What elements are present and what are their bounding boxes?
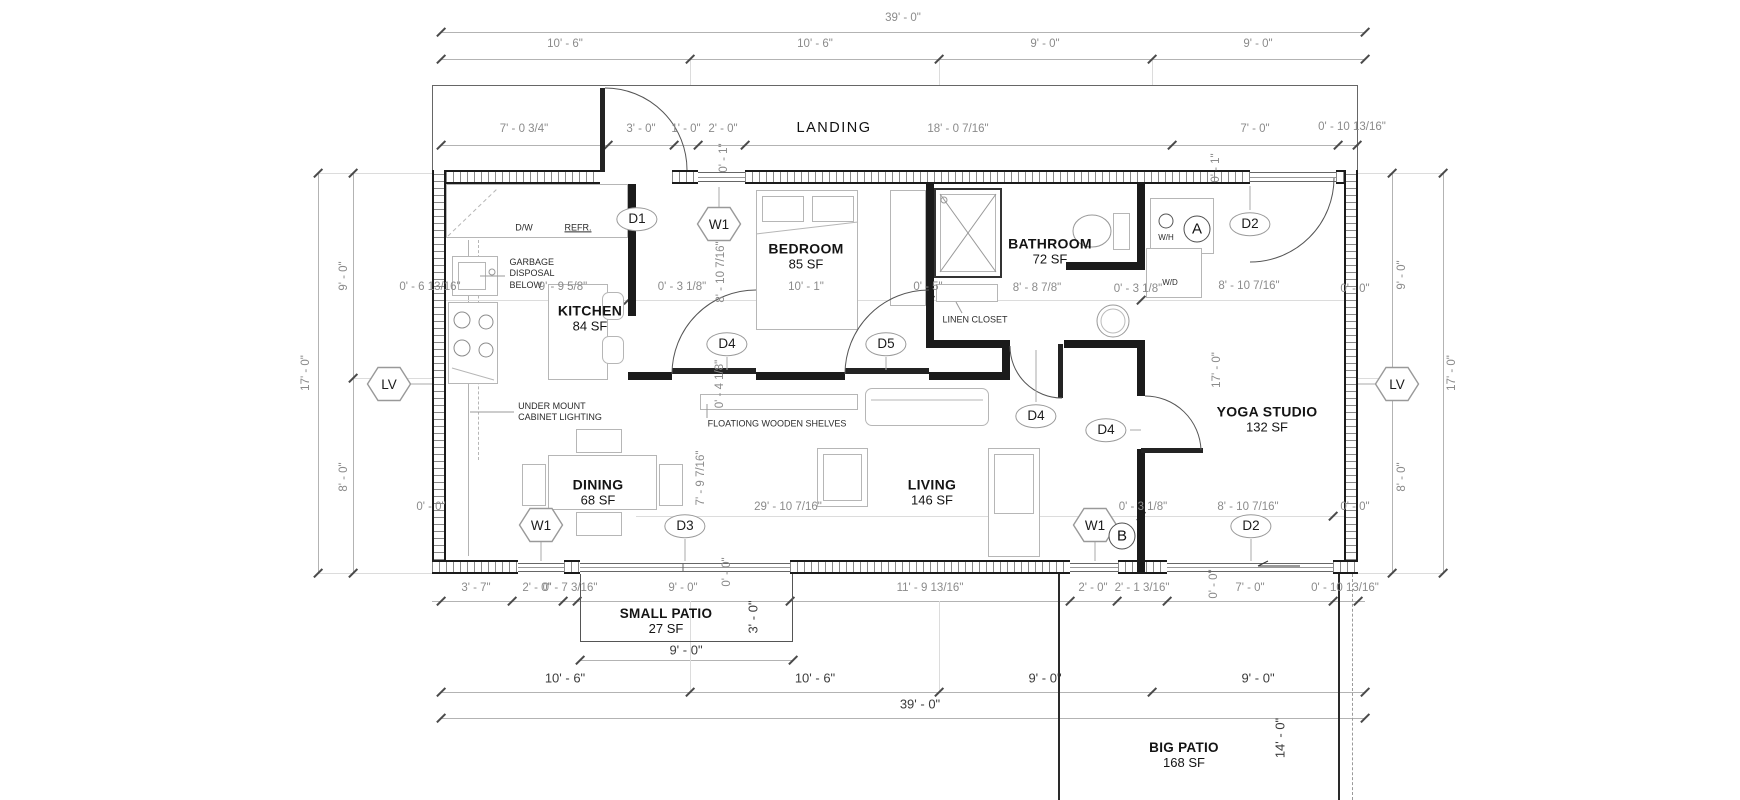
dim-line	[353, 173, 354, 573]
room-name: KITCHEN	[558, 303, 622, 319]
room-label-dining: DINING 68 SF	[573, 477, 624, 508]
dim-0-4-18: 0' - 4 1/8"	[714, 360, 726, 408]
toilet-tank	[1113, 213, 1130, 250]
tag-lv-left: LV	[366, 366, 412, 402]
door-d4-yoga-leaf	[1141, 448, 1203, 453]
tag-window-w1-dining: W1	[518, 507, 564, 543]
dim-small-patio-width: 9' - 0"	[669, 643, 702, 658]
dim-0-1-left: 0' - 1"	[718, 143, 730, 172]
pillow	[812, 196, 854, 222]
linen-closet-shelf	[936, 284, 998, 302]
dim-living-right-1: 0' - 3 1/8"	[1119, 501, 1167, 513]
wall-bedroom-bottom	[756, 372, 845, 380]
island-stool	[602, 336, 624, 364]
dim-left-overall: 17' - 0"	[300, 355, 312, 391]
dim-line	[441, 718, 1365, 719]
dim-bot-5: 11' - 9 13/16"	[897, 582, 964, 594]
dim-mid-4: 10' - 1"	[788, 281, 824, 293]
tag-window-w1-top: W1	[696, 206, 742, 242]
dim-line	[318, 173, 319, 573]
room-area: 27 SF	[620, 621, 713, 636]
dim-small-patio-depth: 3' - 0"	[746, 600, 761, 633]
window-w1-living	[1070, 563, 1118, 572]
tag-text: D2	[1241, 216, 1258, 231]
dim-top-overall: 39' - 0"	[885, 12, 921, 24]
dim-landing-3: 1' - 0"	[671, 123, 700, 135]
dining-chair	[576, 429, 622, 453]
wall-bedroom-bottom	[628, 372, 672, 380]
dim-bot-8: 7' - 0"	[1235, 582, 1264, 594]
room-name: BATHROOM	[1008, 236, 1092, 252]
dim-line	[441, 692, 1365, 693]
dim-bot-9: 0' - 10 13/16"	[1311, 582, 1379, 594]
wall-bottom	[564, 560, 580, 574]
tag-text: A	[1192, 221, 1202, 238]
dim-top-seg2: 10' - 6"	[797, 38, 833, 50]
pillow	[762, 196, 804, 222]
dim-line	[441, 145, 1359, 146]
dim-bot-4: 9' - 0"	[668, 582, 697, 594]
dim-bot-zero-2: 0' - 0"	[1208, 569, 1220, 598]
door-d5-leaf	[845, 368, 929, 374]
wall-yoga-left-upper	[1137, 348, 1145, 396]
room-area: 146 SF	[908, 493, 956, 508]
dim-29-10: 29' - 10 7/16"	[754, 501, 822, 513]
tag-text: D5	[877, 336, 894, 351]
window-w1-bedroom	[698, 172, 745, 182]
dim-0-1-right: 0' - 1"	[1210, 153, 1222, 182]
wall-bottom	[1333, 560, 1358, 574]
dim-bot-1: 3' - 7"	[461, 582, 490, 594]
dim-bseg-4: 9' - 0"	[1241, 671, 1274, 686]
dim-left-zero: 0' - 0"	[416, 501, 445, 513]
washer-dryer-label: W/D	[1162, 278, 1178, 288]
tag-text: D4	[718, 336, 735, 351]
dim-mid-3: 0' - 3 1/8"	[658, 281, 706, 293]
tag-text: D4	[1027, 408, 1044, 423]
landing-label: LANDING	[797, 120, 872, 136]
dim-right-zero: 0' - 0"	[1340, 501, 1369, 513]
dim-line	[441, 59, 1365, 60]
shower-pan	[940, 194, 996, 272]
door-d4-bath-leaf	[1058, 344, 1063, 398]
tag-door-d4-bedroom: D4	[706, 332, 747, 356]
room-area: 85 SF	[768, 257, 843, 272]
room-area: 68 SF	[573, 493, 624, 508]
tag-section-b: B	[1109, 523, 1136, 550]
dishwasher-label: D/W	[515, 222, 533, 233]
dim-living-right-2: 8' - 10 7/16"	[1217, 501, 1278, 513]
dim-mid-8: 8' - 10 7/16"	[1218, 280, 1279, 292]
refrigerator-label: REFR.	[565, 222, 592, 233]
tag-door-d2-top: D2	[1229, 212, 1270, 236]
floor-plan-canvas: 39' - 0" 10' - 6" 10' - 6" 9' - 0" 9' - …	[0, 0, 1740, 800]
wall-bottom	[790, 560, 1070, 574]
dim-line	[1443, 173, 1444, 573]
big-patio-edge	[1338, 574, 1340, 800]
armchair-cushion	[823, 454, 862, 501]
dim-mid-6: 8' - 8 7/8"	[1013, 282, 1061, 294]
tag-text: LV	[366, 366, 412, 402]
wall-top	[672, 170, 698, 184]
wall-bedroom-bath	[926, 184, 934, 348]
dim-mid-9: 0' - 0"	[1340, 283, 1369, 295]
room-label-small-patio: SMALL PATIO 27 SF	[620, 606, 713, 636]
tag-section-a: A	[1184, 216, 1211, 243]
dim-bseg-1: 10' - 6"	[545, 671, 585, 686]
dining-chair	[522, 464, 546, 506]
room-name: DINING	[573, 477, 624, 493]
dim-left-lower: 8' - 0"	[338, 462, 350, 491]
guide-line	[1358, 573, 1443, 574]
tag-door-d4-bath: D4	[1015, 404, 1056, 428]
dim-bot-zero-1: 0' - 0"	[721, 557, 733, 586]
door-d1-leaf	[600, 88, 605, 172]
room-label-bedroom: BEDROOM 85 SF	[768, 241, 843, 272]
dim-line	[441, 32, 1365, 33]
tag-door-d2-bottom: D2	[1230, 514, 1271, 538]
tag-text: D4	[1097, 422, 1114, 437]
dim-mid-7: 0' - 3 1/8"	[1114, 283, 1162, 295]
tag-text: LV	[1374, 366, 1420, 402]
guide-line	[1358, 173, 1443, 174]
dim-landing-6: 7' - 0"	[1240, 123, 1269, 135]
dim-bseg-3: 9' - 0"	[1028, 671, 1061, 686]
dim-top-seg1: 10' - 6"	[547, 38, 583, 50]
tag-text: D1	[628, 211, 645, 226]
room-area: 132 SF	[1217, 420, 1318, 435]
dim-left-upper: 9' - 0"	[338, 261, 350, 290]
dim-bottom-overall: 39' - 0"	[900, 697, 940, 712]
stove	[448, 302, 498, 384]
wall-bottom	[432, 560, 518, 574]
dim-top-seg3: 9' - 0"	[1030, 38, 1059, 50]
dim-bot-3: 0' - 7 3/16"	[543, 582, 598, 594]
dim-landing-4: 2' - 0"	[708, 123, 737, 135]
tag-door-d3: D3	[664, 514, 705, 538]
tag-text: B	[1117, 528, 1127, 545]
guide-line	[318, 173, 432, 174]
wall-kitchen-bedroom	[628, 184, 636, 316]
door-d3-patio-slider	[580, 563, 790, 572]
dim-landing-2: 3' - 0"	[626, 123, 655, 135]
room-label-living: LIVING 146 SF	[908, 477, 956, 508]
door-d2-entry-opening	[1250, 172, 1336, 182]
dim-mid-5: 0' - 5"	[913, 281, 942, 293]
room-area: 72 SF	[1008, 252, 1092, 267]
dim-right-lower: 8' - 0"	[1396, 462, 1408, 491]
big-patio-edge	[1058, 574, 1060, 800]
room-name: YOGA STUDIO	[1217, 404, 1318, 420]
dining-chair	[659, 464, 683, 506]
room-area: 84 SF	[558, 319, 622, 334]
big-patio-dashed-edge	[1352, 574, 1353, 800]
tag-lv-right: LV	[1374, 366, 1420, 402]
room-label-big-patio: BIG PATIO 168 SF	[1149, 740, 1219, 770]
dim-7-9-716: 7' - 9 7/16"	[695, 451, 707, 506]
undermount-lighting-note: UNDER MOUNT CABINET LIGHTING	[518, 401, 602, 424]
floating-shelves-label: FLOATIONG WOODEN SHELVES	[708, 418, 847, 429]
window-w1-dining	[518, 563, 564, 572]
tag-door-d4-yoga: D4	[1085, 418, 1126, 442]
dim-bseg-2: 10' - 6"	[795, 671, 835, 686]
dim-line	[432, 601, 1365, 602]
dim-right-upper: 9' - 0"	[1396, 260, 1408, 289]
sofa	[865, 388, 989, 426]
wall-left	[432, 170, 446, 574]
landing-edge	[432, 85, 1358, 86]
guide-line	[1152, 59, 1153, 85]
tag-door-d1: D1	[616, 207, 657, 231]
tag-text: D2	[1242, 518, 1259, 533]
landing-edge	[432, 85, 433, 170]
dim-right-overall: 17' - 0"	[1446, 355, 1458, 391]
wall-bath-right	[1137, 184, 1145, 270]
room-label-kitchen: KITCHEN 84 SF	[558, 303, 622, 334]
room-name: LIVING	[908, 477, 956, 493]
wall-top	[745, 170, 1250, 184]
room-area: 168 SF	[1149, 755, 1219, 770]
wall-right	[1344, 170, 1358, 574]
water-heater-label: W/H	[1158, 233, 1174, 243]
linen-closet-label: LINEN CLOSET	[942, 314, 1007, 325]
dim-bot-7: 2' - 1 3/16"	[1115, 582, 1170, 594]
guide-line	[939, 601, 940, 692]
dim-bot-6: 2' - 0"	[1078, 582, 1107, 594]
wall-top	[432, 170, 600, 184]
room-label-yoga: YOGA STUDIO 132 SF	[1217, 404, 1318, 435]
kitchen-counter	[446, 184, 628, 238]
dim-big-patio-depth: 14' - 0"	[1273, 718, 1288, 758]
kitchen-sink-basin	[458, 262, 486, 290]
guide-line	[939, 59, 940, 85]
tag-text: W1	[518, 507, 564, 543]
wall-bedroom-bottom	[929, 372, 1010, 380]
shelf-unit-inner	[994, 454, 1034, 514]
door-d2-yoga-slider	[1167, 563, 1333, 572]
dim-landing-1: 7' - 0 3/4"	[500, 123, 548, 135]
room-name: SMALL PATIO	[620, 606, 713, 621]
tag-text: W1	[696, 206, 742, 242]
dim-line	[580, 660, 793, 661]
wall-bath-bottom	[1064, 340, 1145, 348]
dim-mid-v: 8' - 10 7/16"	[715, 241, 727, 302]
dim-mid-2: 9' - 9 5/8"	[539, 281, 587, 293]
dim-yoga-17: 17' - 0"	[1211, 352, 1223, 388]
dining-chair	[576, 512, 622, 536]
tag-door-d5: D5	[865, 332, 906, 356]
wall-bath-bottom	[934, 340, 1010, 348]
room-name: BIG PATIO	[1149, 740, 1219, 755]
dim-mid-1: 0' - 6 13/16"	[399, 281, 460, 293]
tag-text: D3	[676, 518, 693, 533]
guide-line	[690, 59, 691, 85]
dim-landing-7: 0' - 10 13/16"	[1318, 121, 1386, 133]
room-name: BEDROOM	[768, 241, 843, 257]
room-label-bathroom: BATHROOM 72 SF	[1008, 236, 1092, 267]
guide-line	[318, 573, 432, 574]
dim-landing-5: 18' - 0 7/16"	[927, 123, 988, 135]
dim-top-seg4: 9' - 0"	[1243, 38, 1272, 50]
